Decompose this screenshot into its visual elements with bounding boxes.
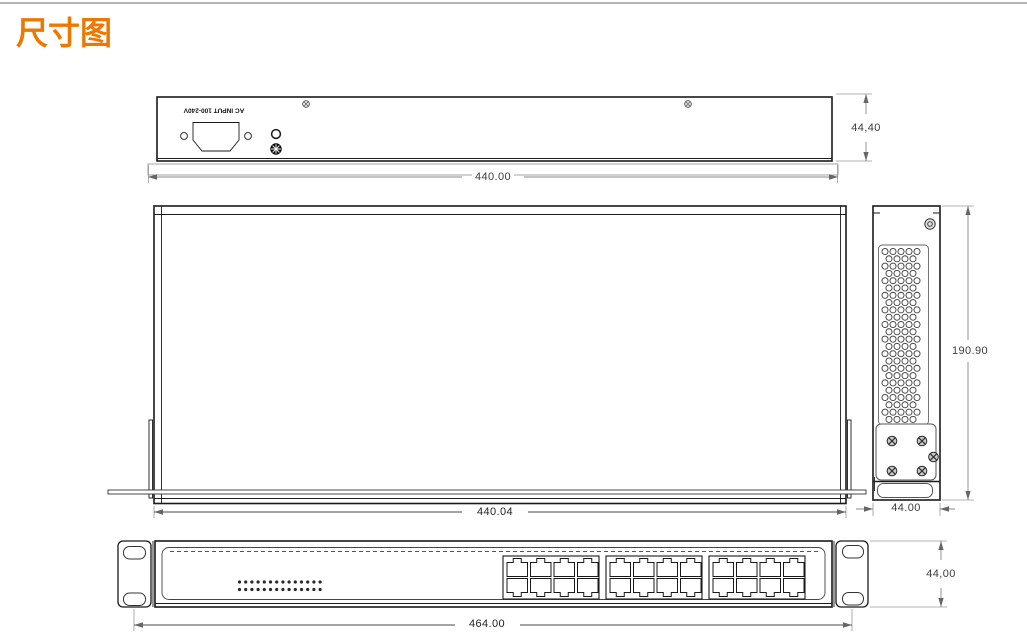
side-view bbox=[856, 206, 974, 516]
rj45-port-groups bbox=[503, 556, 805, 599]
chassis-hole bbox=[272, 130, 281, 139]
screw-icon bbox=[303, 101, 310, 108]
led-dot bbox=[306, 580, 309, 583]
dim-front-width: 464.00 bbox=[466, 618, 508, 630]
screw-icon bbox=[925, 219, 935, 229]
screw-icon bbox=[917, 436, 927, 446]
led-dot bbox=[244, 588, 247, 591]
ac-input-label: AC INPUT 100-240V bbox=[184, 107, 245, 114]
left-ear-slot-top bbox=[124, 547, 146, 560]
led-dot bbox=[269, 580, 272, 583]
led-dot bbox=[294, 588, 297, 591]
right-ear-slot-top bbox=[843, 546, 864, 559]
led-dot bbox=[269, 588, 272, 591]
dim-front-height: 44,00 bbox=[923, 568, 959, 580]
top-view bbox=[108, 206, 866, 518]
led-dot bbox=[319, 580, 322, 583]
ground-terminal-icon bbox=[271, 144, 282, 155]
led-dot bbox=[275, 580, 278, 583]
led-dot bbox=[257, 580, 260, 583]
left-flange bbox=[149, 420, 153, 498]
dim-top-width: 440.04 bbox=[474, 506, 516, 518]
dimension-drawing bbox=[0, 0, 1027, 642]
led-dot bbox=[319, 588, 322, 591]
dimension-drawing-page: 尺寸图 bbox=[0, 0, 1027, 642]
led-dot bbox=[281, 580, 284, 583]
led-dot bbox=[312, 588, 315, 591]
led-dot bbox=[238, 580, 241, 583]
front-view bbox=[118, 541, 947, 631]
led-dot bbox=[300, 588, 303, 591]
led-dot bbox=[312, 580, 315, 583]
led-dot bbox=[250, 588, 253, 591]
screw-icon bbox=[685, 101, 692, 108]
screw-icon bbox=[887, 436, 897, 446]
led-dot bbox=[257, 588, 260, 591]
led-dot bbox=[244, 580, 247, 583]
screw-icon bbox=[929, 452, 939, 462]
led-dot bbox=[275, 588, 278, 591]
dim-side-height: 190.90 bbox=[949, 345, 991, 357]
led-dot bbox=[288, 588, 291, 591]
right-flange bbox=[848, 420, 852, 498]
top-view-outline bbox=[154, 206, 846, 504]
led-dot bbox=[263, 588, 266, 591]
rear-view bbox=[148, 94, 872, 183]
led-dot bbox=[294, 580, 297, 583]
led-dot bbox=[288, 580, 291, 583]
left-ear-slot-bottom bbox=[124, 593, 146, 606]
led-dot bbox=[300, 580, 303, 583]
rear-panel-outline bbox=[157, 97, 832, 161]
dim-rear-height: 44,40 bbox=[848, 122, 884, 134]
led-dot bbox=[238, 588, 241, 591]
led-dot bbox=[281, 588, 284, 591]
side-foot bbox=[878, 484, 933, 498]
dim-rear-width: 440.00 bbox=[472, 171, 514, 183]
screw-icon bbox=[887, 466, 897, 476]
right-ear-slot-bottom bbox=[843, 593, 864, 606]
led-dot bbox=[306, 588, 309, 591]
led-dot bbox=[250, 580, 253, 583]
front-lip bbox=[108, 490, 866, 494]
screw-icon bbox=[917, 466, 927, 476]
dim-side-depth: 44.00 bbox=[888, 502, 924, 514]
led-dot bbox=[263, 580, 266, 583]
